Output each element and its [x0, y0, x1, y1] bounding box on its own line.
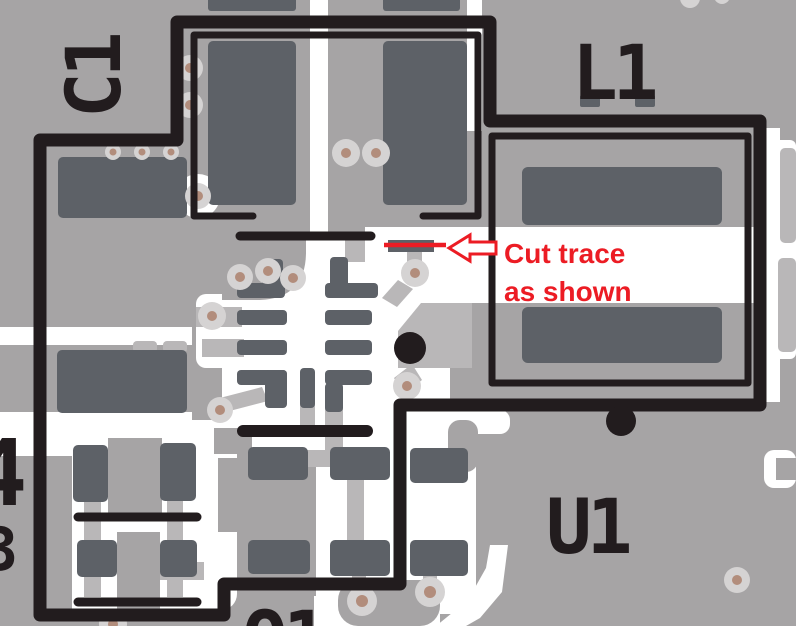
via: [280, 265, 306, 291]
pad: [410, 540, 468, 576]
label-l1: L1: [572, 28, 656, 117]
pad-u1: [325, 370, 372, 385]
pad-c1-bottom: [57, 350, 187, 413]
via: [207, 397, 233, 423]
pad: [410, 448, 468, 483]
via: [415, 577, 445, 607]
pad-c1-top: [58, 157, 187, 218]
pad-u1: [325, 310, 372, 325]
pad: [330, 447, 390, 480]
pad: [248, 540, 310, 574]
via: [393, 372, 421, 400]
pad-l1-top: [522, 167, 722, 225]
label-q1-partial: Q1: [242, 594, 326, 626]
via: [401, 259, 429, 287]
via: [724, 567, 750, 593]
pad-u1: [325, 340, 372, 355]
silkscreen-dot: [606, 406, 636, 436]
pad-c2-right: [383, 41, 467, 205]
pcb-layout-view: C1 L1 U1 Q1 4 3 Cut trace as shown: [0, 0, 796, 626]
pad-u1: [300, 368, 315, 408]
pcb-canvas: C1 L1 U1 Q1 4 3 Cut trace as shown: [0, 0, 796, 626]
via: [227, 264, 253, 290]
via: [198, 302, 226, 330]
label-u1: U1: [546, 482, 630, 571]
cut-trace-text-line1: Cut trace: [504, 238, 625, 269]
pad: [248, 447, 308, 480]
pad: [208, 0, 296, 11]
pad-u1: [237, 340, 287, 355]
cut-trace-text-line2: as shown: [504, 276, 632, 307]
pin1-dot: [394, 332, 426, 364]
pad: [77, 540, 117, 577]
via: [185, 183, 211, 209]
pad: [330, 540, 390, 576]
label-left-partial-bottom: 3: [0, 515, 15, 585]
pad: [160, 443, 196, 501]
pad-u1: [325, 383, 343, 412]
pad: [383, 0, 460, 11]
pad: [160, 540, 197, 577]
pad-u1: [330, 257, 348, 298]
pad-u1: [237, 310, 287, 325]
pad-c2-left: [208, 41, 296, 205]
pad: [73, 445, 108, 502]
pad-l1-bottom: [522, 307, 722, 363]
label-c1: C1: [49, 34, 138, 118]
via: [255, 258, 281, 284]
label-left-partial-top: 4: [0, 420, 24, 527]
pad-u1: [265, 370, 287, 408]
via: [362, 139, 390, 167]
via: [332, 139, 360, 167]
